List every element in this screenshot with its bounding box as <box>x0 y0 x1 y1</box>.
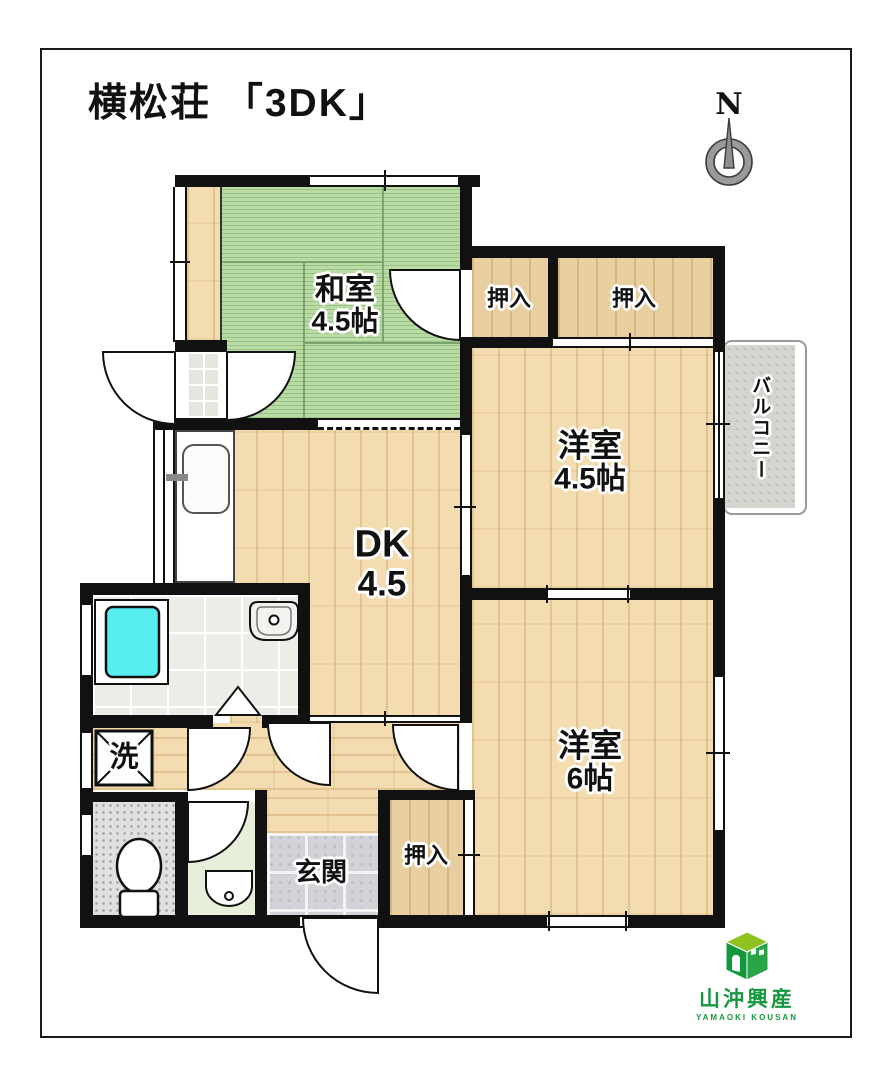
window-balcony <box>713 352 725 498</box>
dimension-tick <box>625 911 627 931</box>
tatami-mat-line <box>382 187 384 343</box>
label-laundry: 洗 <box>109 742 138 773</box>
wall <box>628 915 725 928</box>
window-western6-bottom <box>547 915 628 928</box>
hallway-floor <box>93 723 460 790</box>
wall <box>175 800 188 915</box>
sliding-door-dk-western45 <box>460 435 472 575</box>
wall <box>175 175 310 187</box>
label-closet-bottom: 押入 <box>404 844 448 868</box>
kitchen-counter <box>175 430 235 583</box>
entrance-door-opening <box>300 915 378 928</box>
wall <box>80 792 188 802</box>
label-entrance: 玄関 <box>295 858 347 886</box>
wall <box>378 790 390 928</box>
wall <box>460 342 472 435</box>
dimension-tick <box>384 711 386 726</box>
wall <box>255 790 267 915</box>
wall <box>630 588 725 600</box>
company-logo: 山沖興産 YAMAOKI KOUSAN <box>672 930 822 1022</box>
corridor-floor <box>187 187 222 340</box>
wall <box>470 915 547 928</box>
wall <box>298 595 310 715</box>
window-washitsu-top <box>308 175 458 187</box>
wall <box>175 915 267 928</box>
label-closet-top-left: 押入 <box>487 287 531 311</box>
passage-threshold <box>218 352 227 418</box>
window-bathroom-left <box>80 605 93 675</box>
sliding-door-closet-bottom <box>463 800 475 915</box>
page-title: 横松荘 「3DK」 <box>88 72 390 128</box>
dimension-tick <box>706 752 730 754</box>
wall <box>460 915 472 928</box>
dimension-tick <box>627 585 629 603</box>
wall <box>383 790 475 800</box>
label-washitsu: 和室 4.5帖 <box>312 275 379 338</box>
wall <box>80 715 213 728</box>
label-closet-top-right: 押入 <box>612 287 656 311</box>
wall <box>262 715 310 728</box>
label-western-room-6: 洋室 6帖 <box>558 729 622 796</box>
window-toilet-left <box>80 815 93 855</box>
tatami-mat-line <box>303 261 305 418</box>
dimension-tick <box>170 261 190 263</box>
floor-plan-page: 横松荘 「3DK」 <box>0 0 893 1082</box>
compass-icon: N <box>690 84 770 190</box>
window-corridor-left <box>173 187 187 342</box>
toilet-room-floor <box>93 802 175 915</box>
sliding-door-western45-western6 <box>547 588 630 600</box>
sliding-door-washitsu-dk <box>318 418 460 430</box>
wall <box>153 418 318 430</box>
bathroom-floor <box>93 595 298 715</box>
wall <box>255 915 300 928</box>
label-dk: DK 4.5 <box>355 525 410 604</box>
wall <box>460 588 547 600</box>
dimension-tick <box>458 854 480 856</box>
wall <box>88 583 310 595</box>
wall <box>460 246 725 258</box>
window-laundry-left <box>80 733 93 788</box>
wall <box>713 246 725 352</box>
company-name: 山沖興産 <box>672 987 822 1012</box>
dimension-tick <box>706 423 730 425</box>
dimension-tick <box>384 170 386 191</box>
dimension-tick <box>629 333 631 351</box>
dimension-tick <box>548 911 550 931</box>
dimension-tick <box>454 506 476 508</box>
compass-north-letter: N <box>715 87 742 122</box>
wall <box>80 915 188 928</box>
washbasin-room-floor <box>188 802 255 915</box>
wall <box>460 337 553 348</box>
company-name-romaji: YAMAOKI KOUSAN <box>672 1013 822 1022</box>
wall <box>713 830 725 928</box>
back-door-passage-floor <box>187 352 218 418</box>
company-logo-cube-icon <box>723 930 771 982</box>
dimension-tick <box>546 585 548 603</box>
wall <box>175 340 227 352</box>
wall <box>548 258 558 337</box>
window-kitchen-left <box>153 430 175 583</box>
wall <box>80 583 93 605</box>
label-balcony: バルコニー <box>749 376 770 481</box>
entrance-step-floor <box>267 790 378 833</box>
sliding-door-closet-top-right <box>553 337 713 348</box>
label-western-room-45: 洋室 4.5帖 <box>554 429 626 496</box>
